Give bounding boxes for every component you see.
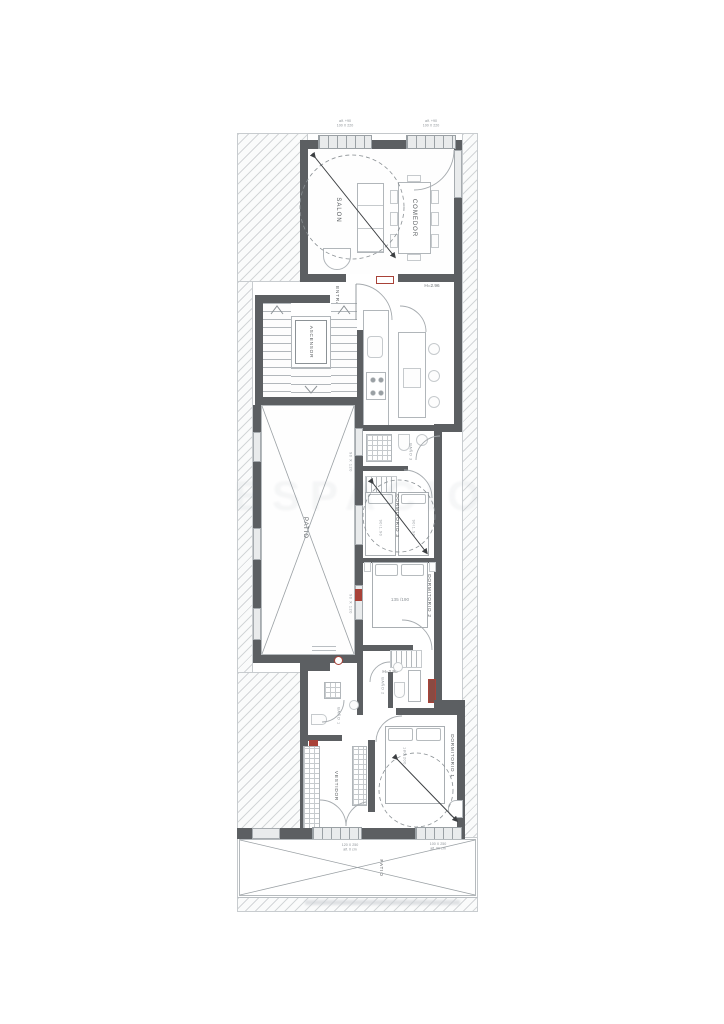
bed1-label: 180/200 — [402, 747, 406, 765]
window-top-2-label: alf. +90 100 X 220 — [423, 120, 439, 128]
window-salon-2 — [406, 135, 456, 149]
room-label-patio-bottom: PATIO — [379, 859, 384, 878]
sink-bath1 — [349, 700, 359, 710]
patio-left-window — [253, 528, 261, 560]
bed3-left-label: 90/1.90 — [378, 520, 382, 537]
hatch-top-left — [237, 133, 308, 282]
kitchen-stool — [428, 396, 440, 408]
patio-right-window — [355, 428, 363, 456]
patio-left-window — [253, 608, 261, 640]
floorplan-page: alf. +90 100 X 220 alf. +90 100 X 220 SA… — [0, 0, 724, 1024]
room-label-bano1: BAÑO 1 — [336, 707, 340, 724]
pillow — [388, 728, 413, 741]
patio-window-label-2: 90 X 120 — [348, 594, 352, 614]
wardrobe-right — [352, 746, 367, 806]
room-label-bano2: BAÑO 2 — [380, 677, 384, 694]
red-marker-note — [334, 656, 343, 665]
wall-salon-left — [300, 140, 308, 282]
dining-chair — [407, 175, 421, 182]
bed3-right-label: 90/1.90 — [411, 520, 415, 537]
red-marker-dorm2 — [355, 589, 362, 601]
nightstand — [429, 562, 436, 572]
note-line — [312, 654, 336, 655]
island-sink — [403, 368, 421, 388]
wall-bath3-top — [363, 425, 440, 431]
wall-salon-bottom-left — [300, 274, 346, 282]
sofa — [357, 183, 384, 253]
armchair-dorm1 — [448, 800, 463, 818]
room-label-dormitorio1: DORMITORIO 1 — [450, 734, 455, 778]
pillow — [401, 564, 424, 576]
window-bottom-2-label: 100 X 250 alf. 90 cm — [430, 843, 446, 851]
dining-chair — [431, 234, 439, 248]
wall-vestidor-right — [368, 740, 375, 812]
kitchen-stove — [366, 372, 386, 400]
window-top-2-size: 100 X 220 — [423, 124, 439, 128]
room-label-ascensor: ASCENSOR — [309, 326, 314, 359]
dining-chair — [431, 212, 439, 226]
window-bottom-1-sill: alf. 0 cm — [343, 848, 357, 852]
wall-bath3-bottom — [363, 466, 408, 471]
patio-window-label-1: 90 X 120 — [348, 452, 352, 472]
wall-stair-bottom — [255, 397, 365, 405]
room-label-salon: SALON — [335, 197, 341, 222]
sink-bath3 — [416, 434, 428, 446]
room-label-dormitorio2: DORMITORIO 2 — [427, 574, 432, 618]
room-label-bano3: BAÑO 3 — [408, 443, 412, 460]
toilet-bath2 — [394, 682, 405, 698]
wall-patio-step — [300, 663, 330, 671]
wall-vestidor-top — [300, 735, 342, 741]
watermark: ESPACIO — [232, 472, 492, 520]
toilet-bath1 — [311, 714, 327, 725]
shower-bath3 — [366, 434, 392, 462]
shower-bath1 — [324, 682, 341, 699]
dining-chair — [390, 190, 398, 204]
kitchen-stool — [428, 343, 440, 355]
window-top-1-label: alf. +90 100 X 220 — [337, 120, 353, 128]
room-label-vestidor: VESTIDOR — [334, 771, 339, 801]
window-bottom-1-label: 120 X 250 alf. 0 cm — [342, 844, 358, 852]
red-marker-entry — [376, 276, 394, 284]
wall-patio-bottom — [253, 655, 363, 663]
window-bottom-1-size: 120 X 250 — [342, 844, 358, 848]
wall-stair-left — [255, 295, 263, 405]
window-top-1-sill: alf. +90 — [339, 120, 351, 124]
patio-left-window — [253, 432, 261, 462]
wall-dorm1-top — [396, 708, 465, 715]
kitchen-counter — [363, 310, 389, 428]
wall-bano2-left — [388, 672, 393, 708]
wall-stair-top — [255, 295, 330, 303]
kitchen-stool — [428, 370, 440, 382]
height-entry-label: H=2.96 — [424, 284, 439, 289]
pillow — [375, 564, 398, 576]
wall-salon-bottom-right — [398, 274, 462, 282]
dining-chair — [390, 212, 398, 226]
stair-treads-right — [331, 303, 357, 397]
window-balcony-right — [454, 150, 462, 198]
pillow — [416, 728, 441, 741]
room-patio — [261, 405, 355, 655]
room-label-comedor: COMEDOR — [411, 199, 417, 237]
note-line — [312, 650, 336, 651]
stair-treads-bottom — [291, 368, 331, 397]
stair-treads-left — [263, 303, 291, 397]
faint-caption-strip — [305, 900, 460, 905]
window-bottom-2-size: 100 X 250 — [430, 843, 446, 847]
dining-chair — [390, 234, 398, 248]
bed2-label: 135 /190 — [391, 598, 409, 603]
wardrobe-left — [303, 746, 320, 830]
window-bottom-gap — [252, 828, 280, 839]
note-line — [312, 646, 336, 647]
sink-bath2 — [393, 662, 403, 672]
nightstand — [364, 562, 371, 572]
dining-chair — [407, 254, 421, 261]
shower-bath2 — [408, 670, 421, 702]
window-salon-1 — [318, 135, 372, 149]
window-bottom-2-sill: alf. 90 cm — [430, 847, 446, 851]
kitchen-sink — [367, 336, 383, 358]
hatch-left-bottom — [237, 672, 301, 838]
wall-kitchen-right — [454, 282, 462, 428]
window-top-1-size: 100 X 220 — [337, 124, 353, 128]
room-label-patio: PATIO — [302, 517, 308, 539]
window-top-2-sill: alf. +90 — [425, 120, 437, 124]
dining-chair — [431, 190, 439, 204]
